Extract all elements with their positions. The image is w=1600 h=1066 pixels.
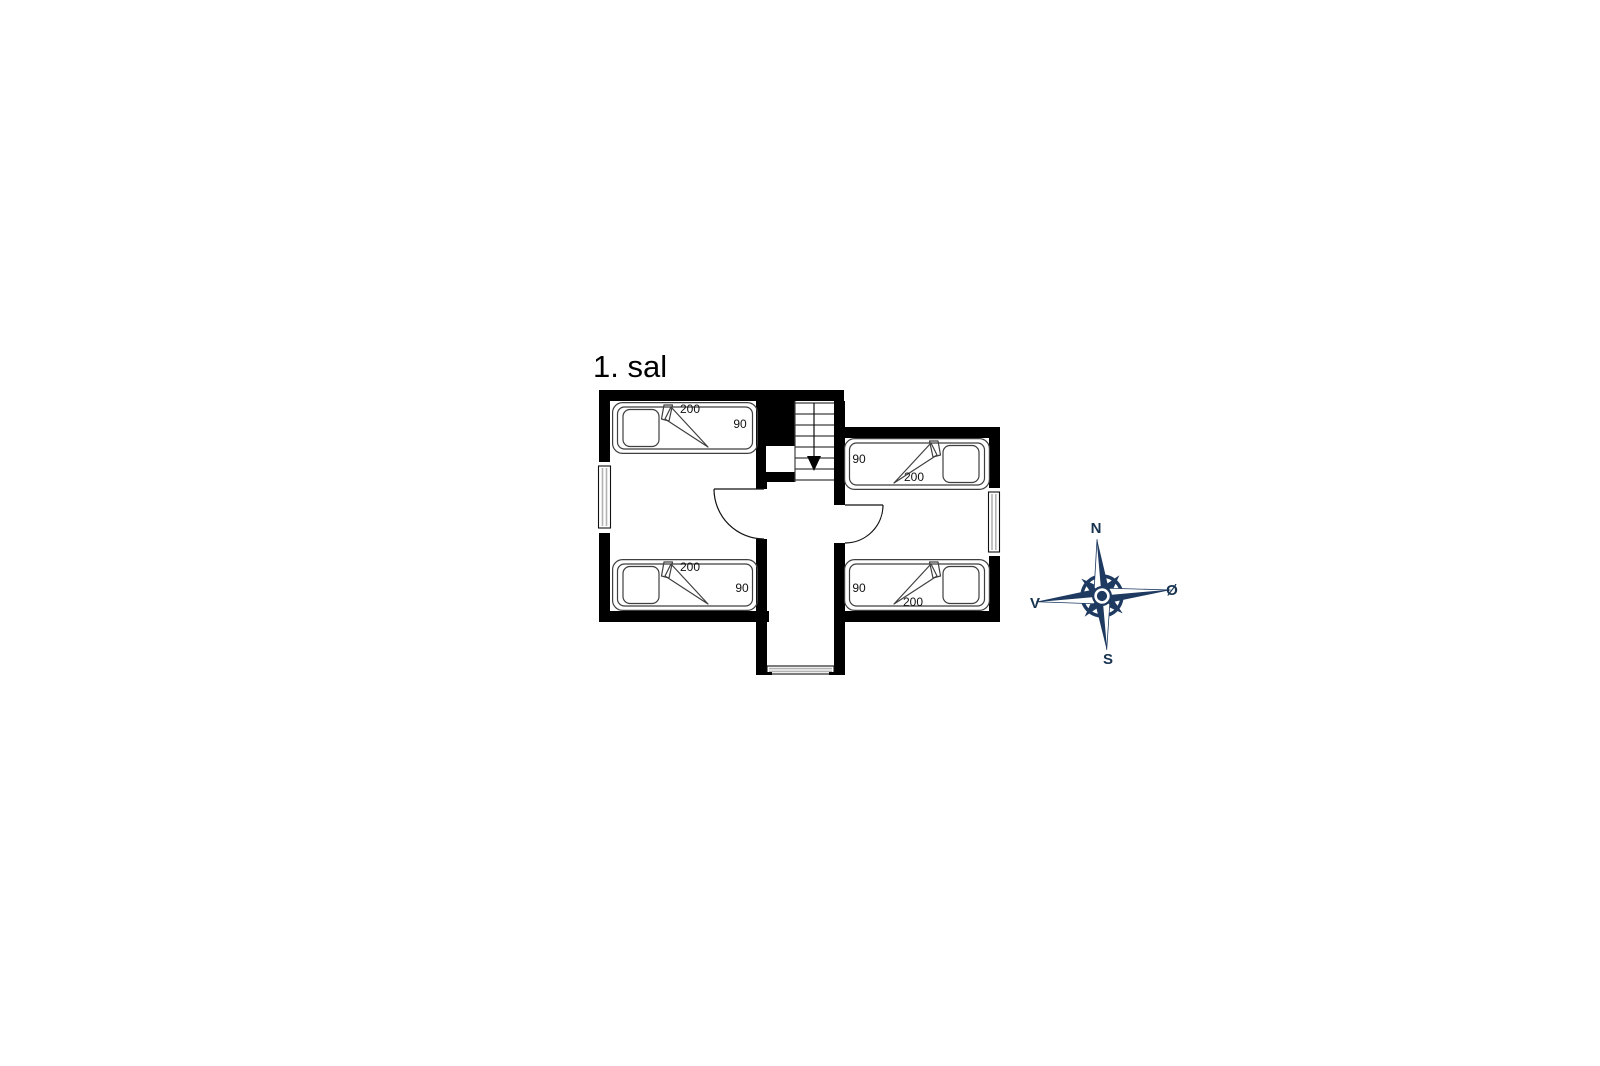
bed-length-label: 200 xyxy=(680,560,700,574)
floor-plan-canvas: 1. sal xyxy=(0,0,1600,1066)
compass-label-north: N xyxy=(1091,520,1102,537)
staircase xyxy=(795,401,834,482)
window-east xyxy=(989,492,1000,552)
bed-width-label: 90 xyxy=(852,581,866,595)
compass-label-east: Ø xyxy=(1166,582,1178,599)
bed-length-label: 200 xyxy=(680,402,700,416)
floor-title: 1. sal xyxy=(593,349,667,384)
floor-plan-page: 1. sal xyxy=(0,0,1600,1066)
window-west xyxy=(599,466,611,528)
bed-length-label: 200 xyxy=(904,470,924,484)
door-swing-arc xyxy=(845,505,883,543)
bed-length-label: 200 xyxy=(903,595,923,609)
compass-label-south: S xyxy=(1103,651,1113,668)
bed-width-label: 90 xyxy=(852,452,866,466)
wall-segment xyxy=(834,611,1000,622)
wall-segment xyxy=(834,427,1000,438)
wall-segment xyxy=(599,390,844,401)
wall-segment xyxy=(756,472,795,482)
wall-segment xyxy=(756,401,795,446)
wall-segment xyxy=(756,446,766,472)
bed-width-label: 90 xyxy=(735,581,749,595)
window-south xyxy=(767,666,834,675)
compass-rose-icon: N Ø S V xyxy=(1030,520,1178,668)
door-right-bedroom xyxy=(845,505,883,543)
wall-segment xyxy=(599,611,769,622)
wall-openings xyxy=(598,462,1002,675)
compass-label-west: V xyxy=(1030,595,1040,612)
bed-width-label: 90 xyxy=(733,417,747,431)
